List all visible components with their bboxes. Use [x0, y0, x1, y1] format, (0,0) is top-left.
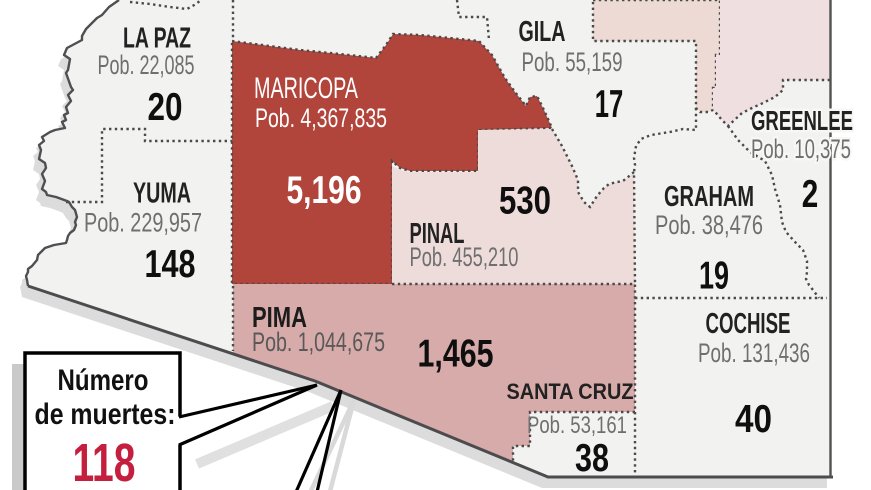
svg-text:MARICOPA: MARICOPA — [254, 72, 358, 105]
svg-text:Número: Número — [58, 364, 149, 397]
svg-text:COCHISE: COCHISE — [706, 308, 791, 340]
svg-text:Pob. 10,375: Pob. 10,375 — [751, 134, 851, 164]
svg-text:Pob. 455,210: Pob. 455,210 — [410, 242, 519, 272]
svg-text:2: 2 — [802, 173, 819, 216]
svg-text:Pob. 229,957: Pob. 229,957 — [84, 208, 202, 238]
svg-text:Pob. 131,436: Pob. 131,436 — [698, 338, 810, 368]
svg-text:148: 148 — [145, 243, 196, 286]
svg-text:38: 38 — [575, 437, 609, 480]
svg-text:SANTA CRUZ: SANTA CRUZ — [507, 379, 634, 404]
svg-text:19: 19 — [699, 255, 729, 298]
svg-text:17: 17 — [595, 83, 624, 126]
svg-text:118: 118 — [73, 433, 136, 490]
svg-text:Pob. 38,476: Pob. 38,476 — [655, 210, 763, 240]
svg-text:Pob. 53,161: Pob. 53,161 — [527, 412, 627, 439]
svg-text:GILA: GILA — [519, 16, 566, 48]
svg-text:40: 40 — [735, 398, 772, 441]
svg-text:Pob. 22,085: Pob. 22,085 — [98, 50, 195, 80]
svg-text:20: 20 — [148, 86, 183, 129]
svg-text:GRAHAM: GRAHAM — [664, 181, 754, 213]
svg-text:de muertes:: de muertes: — [35, 398, 176, 431]
svg-text:Pob. 55,159: Pob. 55,159 — [522, 47, 623, 77]
svg-text:Pob. 4,367,835: Pob. 4,367,835 — [255, 103, 387, 133]
svg-text:530: 530 — [499, 180, 551, 223]
svg-text:1,465: 1,465 — [418, 333, 494, 376]
svg-text:5,196: 5,196 — [287, 169, 362, 212]
svg-text:Pob. 1,044,675: Pob. 1,044,675 — [252, 327, 385, 357]
svg-text:YUMA: YUMA — [133, 178, 191, 210]
svg-text:GREENLEE: GREENLEE — [751, 105, 853, 136]
